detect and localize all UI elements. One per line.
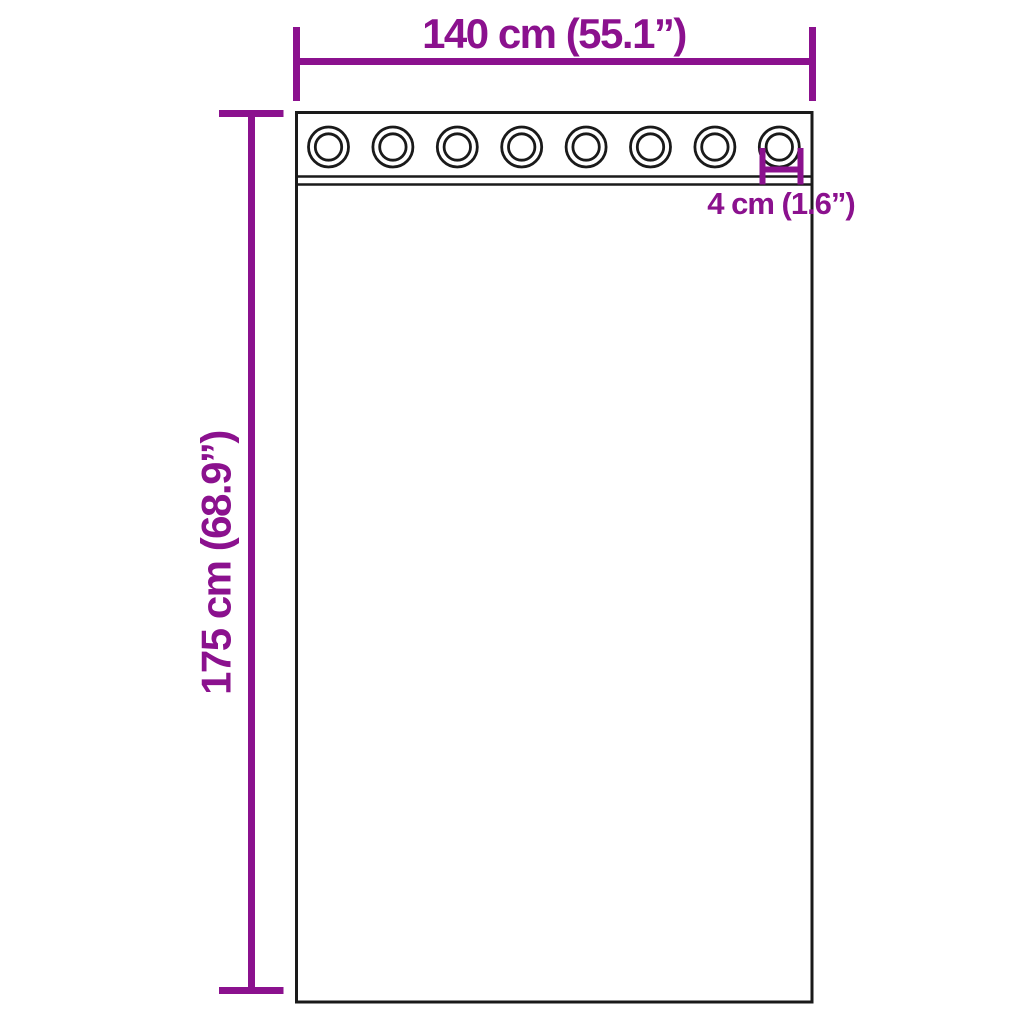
grommet-inner-ring xyxy=(509,134,535,160)
curtain-panel xyxy=(297,113,813,1003)
width-dimension-label: 140 cm (55.1”) xyxy=(422,10,686,57)
grommet-inner-ring xyxy=(702,134,728,160)
grommet-inner-ring xyxy=(315,134,341,160)
grommet-inner-ring xyxy=(637,134,663,160)
height-dimension-label: 175 cm (68.9”) xyxy=(193,431,240,695)
curtain-diagram-canvas: 140 cm (55.1”) 175 cm (68.9”) 4 cm (1.6”… xyxy=(0,0,1024,1024)
product-dimension-diagram: 140 cm (55.1”) 175 cm (68.9”) 4 cm (1.6”… xyxy=(0,0,1024,1024)
grommet-inner-ring xyxy=(573,134,599,160)
grommet-inner-ring xyxy=(380,134,406,160)
height-dimension: 175 cm (68.9”) xyxy=(193,114,284,991)
width-dimension: 140 cm (55.1”) xyxy=(293,10,816,101)
grommet-inner-ring xyxy=(766,134,792,160)
grommet-inner-ring xyxy=(444,134,470,160)
grommet-dimension-label: 4 cm (1.6”) xyxy=(707,186,855,221)
